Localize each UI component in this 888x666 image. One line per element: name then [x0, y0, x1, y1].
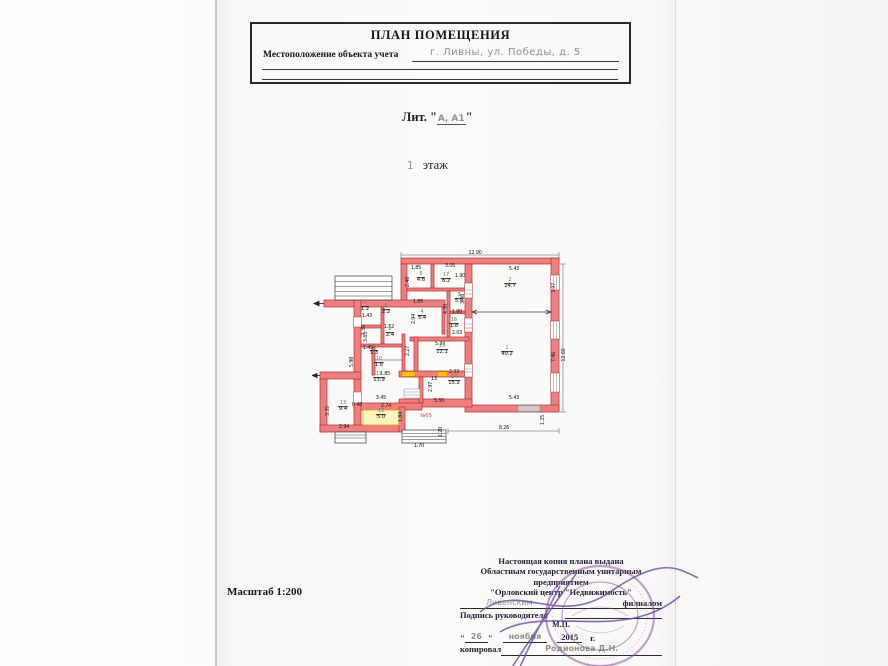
copied-value: Родионова Д.Н. [501, 644, 662, 655]
dimension-label: 3.45 [376, 395, 386, 401]
date-month: ноября [503, 632, 548, 643]
dimension-label: 1.80 [452, 309, 462, 315]
header-box: ПЛАН ПОМЕЩЕНИЯ Местоположение объекта уч… [250, 22, 631, 84]
stamp-line-3: предприятием [460, 577, 662, 587]
litera-suffix: " [466, 110, 473, 124]
dimension-label: 1.85 [411, 265, 421, 271]
dimension-label: 2.03 [452, 330, 462, 336]
dimension-label: 1.36 [361, 325, 367, 335]
dimension-label: 7.46 [551, 352, 557, 362]
plan-labels: 12.905.433.977.4612.605.438.261.251.852.… [312, 248, 578, 452]
branch-row: Ливенским филиалом [460, 598, 662, 609]
dimension-label: 3.05 [445, 263, 455, 269]
mp-label: М.П. [460, 620, 662, 630]
dimension-label: 1.43 [362, 313, 372, 319]
branch-handwritten: Ливенским [486, 598, 533, 608]
room-label: 91.3 [370, 345, 378, 357]
signature-row: Подпись руководителя [460, 610, 662, 620]
dimension-label: 2.48 [405, 277, 411, 287]
date-row: " 26 " ноября 2015 г. [460, 632, 662, 643]
dimension-label: 2.94 [339, 424, 349, 430]
dimension-label: 2.94 [411, 314, 417, 324]
room-label: 1512.1 [436, 344, 448, 356]
signature-label: Подпись руководителя [460, 610, 548, 620]
dimension-label: 3.97 [551, 283, 557, 293]
dimension-label: 1.70 [414, 443, 424, 449]
room-label: 54.6 [417, 272, 425, 284]
room-label: 161.8 [449, 318, 459, 330]
dimension-label: 1.25 [540, 415, 546, 425]
scale-label: Масштаб 1:200 [227, 586, 302, 598]
stamp-line-4: "Орловский центр "Недвижимость" [460, 587, 662, 597]
branch-printed: филиалом [623, 598, 662, 608]
room-label: 139.4 [338, 401, 348, 413]
location-label: Местоположение объекта учета [263, 50, 398, 60]
room-label: 62.2 [382, 304, 390, 316]
dimension-label: 12.90 [468, 250, 481, 256]
location-value: г. Ливны, ул. Победы, д. 5 [430, 47, 581, 58]
date-year: 2015 [557, 632, 582, 643]
scanned-page: ПЛАН ПОМЕЩЕНИЯ Местоположение объекта уч… [215, 0, 676, 666]
dimension-label: 0.48 [352, 402, 362, 408]
stamp-line-2: Областным государственным унитарным [460, 566, 662, 576]
room-label: 82.4 [386, 327, 394, 339]
dimension-label: 4.50 [443, 304, 449, 314]
room-label: 45.4 [418, 310, 426, 322]
dimension-label: 8.26 [499, 425, 509, 431]
ruled-line [262, 69, 618, 70]
date-quote-close: " [488, 633, 493, 643]
dimension-label: 5.43 [509, 395, 519, 401]
ruled-line [262, 79, 618, 80]
floor-line: 1этаж [407, 158, 448, 173]
dimension-label: 5.98 [349, 357, 355, 367]
room-label: 140.2 [501, 346, 513, 358]
stamp-block: Настоящая копия плана выдана Областным г… [460, 556, 662, 656]
room-label: 71.2 [361, 301, 369, 313]
dimension-label: 5.43 [509, 266, 519, 272]
dimension-label: 2.97 [428, 382, 434, 392]
dimension-label: 2.27 [405, 346, 411, 356]
room-label: 35.4 [455, 293, 463, 305]
floor-number: 1 [407, 160, 414, 172]
dimension-label: 1.20 [438, 427, 444, 437]
dimension-label: 3.35 [325, 406, 331, 416]
date-day: 26 [465, 632, 488, 643]
room-label: 178.2 [441, 273, 451, 285]
dimension-label: 1.90 [455, 273, 465, 279]
floor-plan: 12.905.433.977.4612.605.438.261.251.852.… [312, 248, 578, 452]
room-label: 1113.9 [373, 372, 385, 384]
page-title: ПЛАН ПОМЕЩЕНИЯ [252, 28, 629, 43]
copied-label: копировал [460, 644, 501, 655]
stamp-line-1: Настоящая копия плана выдана [460, 556, 662, 566]
dimension-label: 1.85 [413, 299, 423, 305]
date-suffix: г. [590, 633, 595, 643]
red-note-label: №05 [420, 413, 432, 419]
room-label: 1415.2 [448, 375, 460, 387]
room-label: 224.7 [504, 278, 516, 290]
room-label: 125.0 [376, 409, 386, 421]
copied-row: копировал Родионова Д.Н. [460, 644, 662, 655]
litera-line: Лит. "А, А1" [402, 110, 473, 125]
dimension-label: 12.60 [561, 348, 567, 361]
dimension-label: 5.30 [434, 398, 444, 404]
ruled-line [412, 61, 619, 62]
litera-value: А, А1 [437, 114, 466, 125]
litera-prefix: Лит. " [402, 110, 437, 124]
floor-label: этаж [423, 158, 448, 172]
dimension-label: 1.84 [398, 412, 404, 422]
room-label: 101.6 [374, 357, 384, 369]
